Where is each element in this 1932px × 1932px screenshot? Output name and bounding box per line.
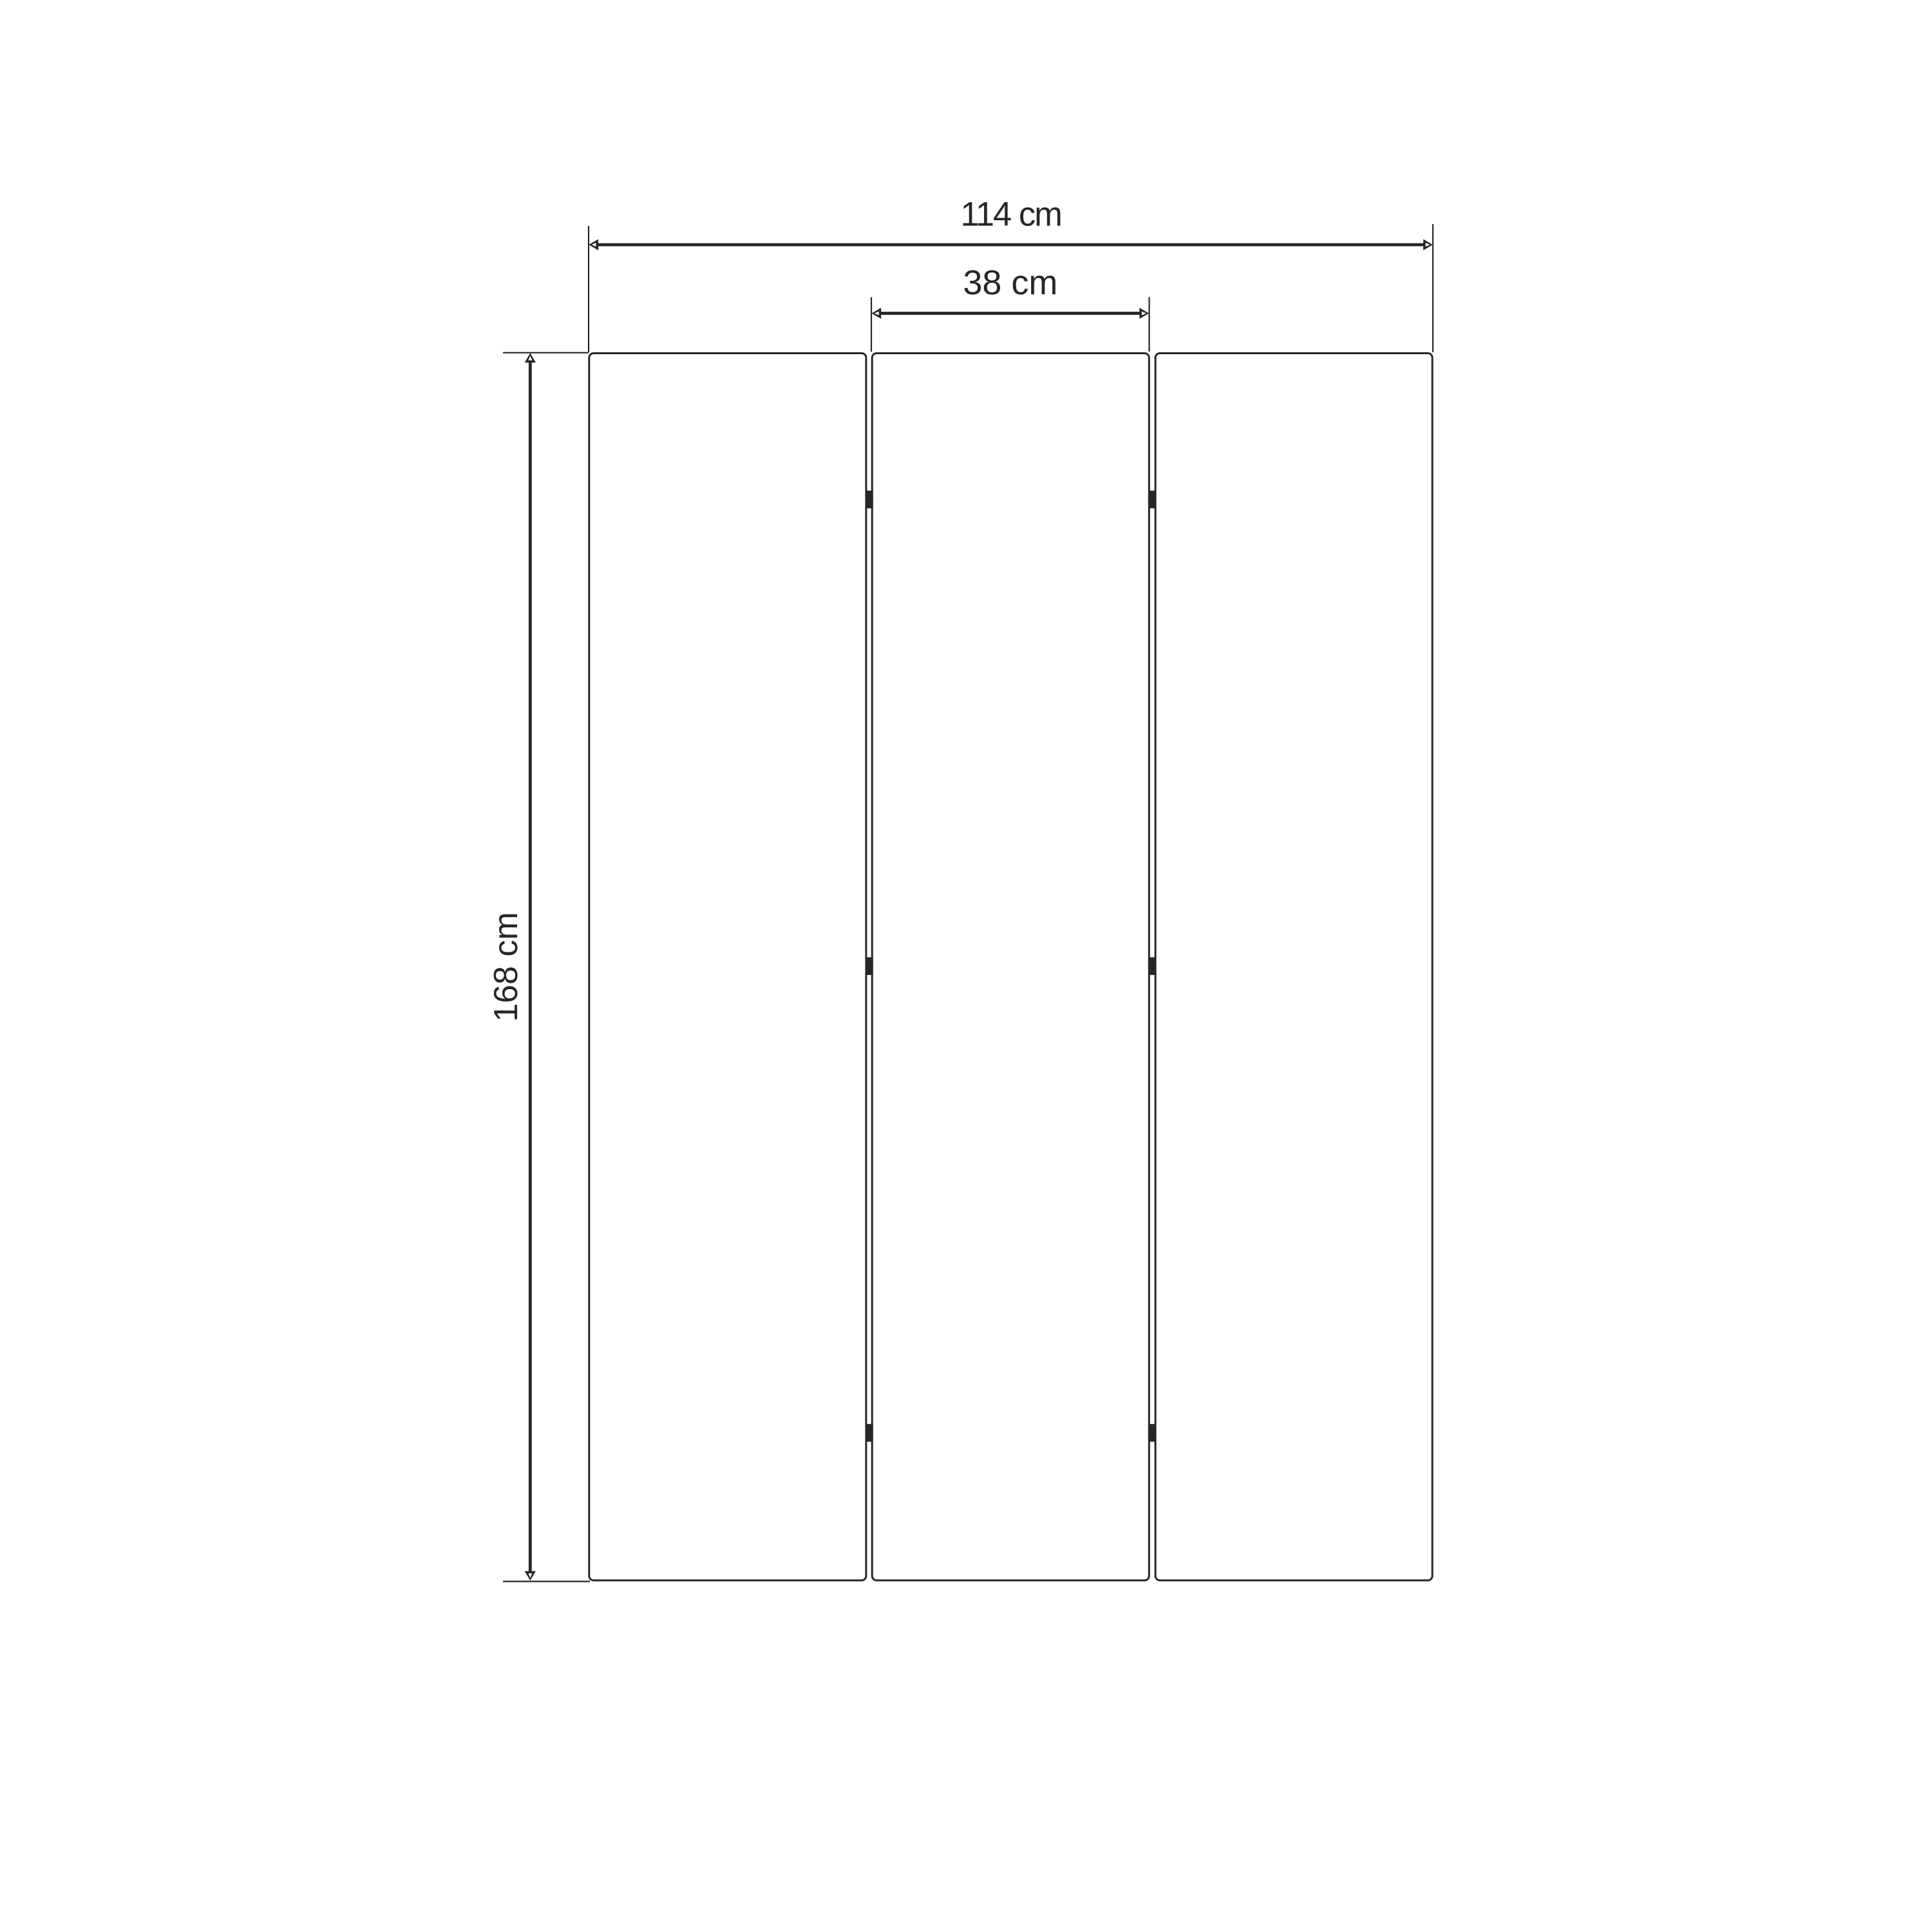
svg-text:38 cm: 38 cm bbox=[963, 263, 1057, 302]
svg-text:114 cm: 114 cm bbox=[961, 196, 1061, 234]
svg-text:168 cm: 168 cm bbox=[488, 912, 525, 1022]
